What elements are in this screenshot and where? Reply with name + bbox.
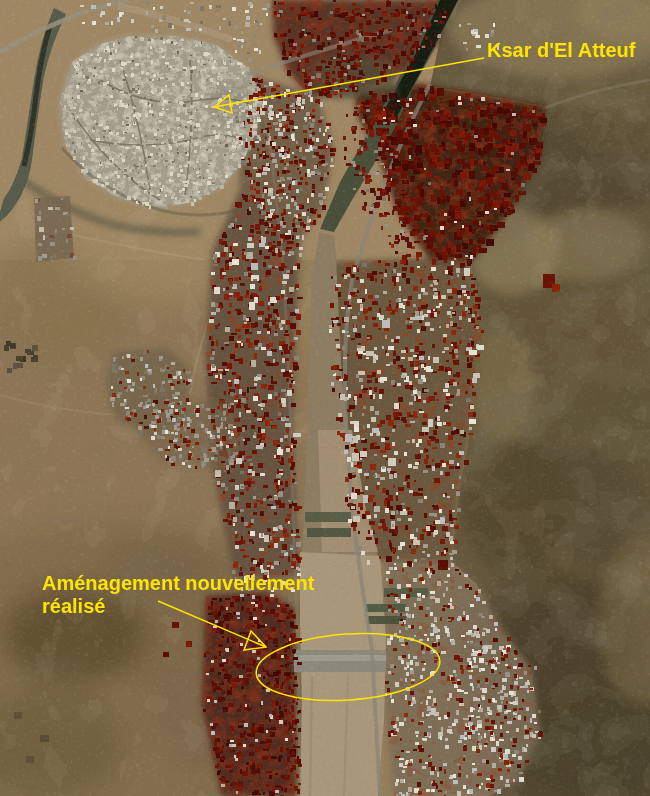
svg-text:Ksar d'El Atteuf: Ksar d'El Atteuf (487, 39, 636, 61)
svg-text:réalisé: réalisé (42, 595, 105, 617)
svg-text:Aménagement nouvellement: Aménagement nouvellement (42, 572, 315, 594)
